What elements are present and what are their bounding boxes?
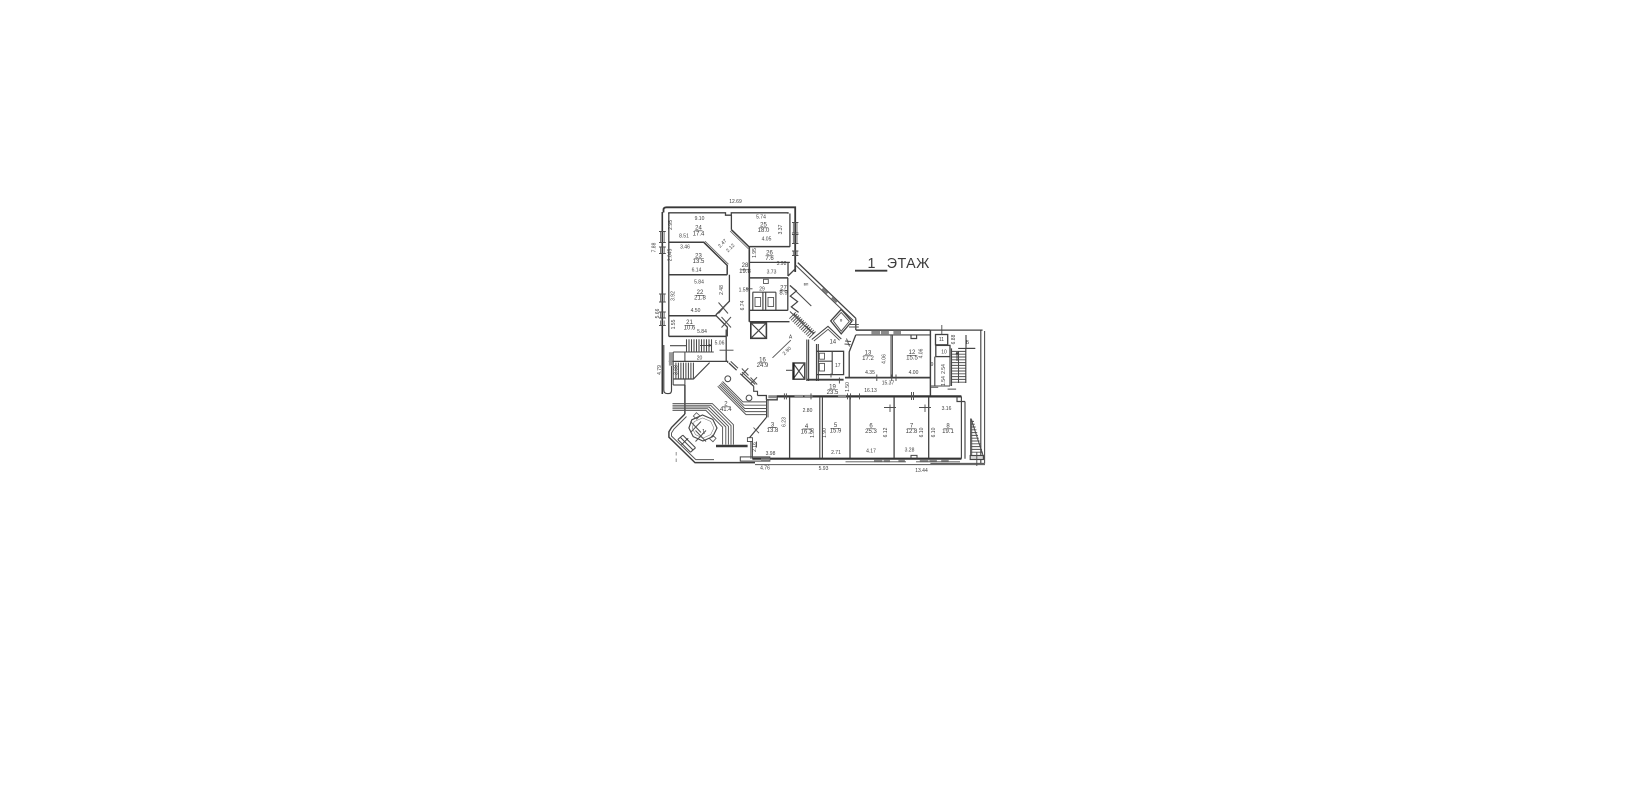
svg-text:16.13: 16.13 xyxy=(864,388,877,394)
svg-text:3.28: 3.28 xyxy=(905,448,915,454)
svg-text:13.5: 13.5 xyxy=(693,259,705,265)
svg-text:41.4: 41.4 xyxy=(720,407,732,413)
svg-text:5.84: 5.84 xyxy=(697,329,707,335)
svg-text:1.90: 1.90 xyxy=(822,428,828,438)
svg-text:1.90: 1.90 xyxy=(810,428,816,438)
svg-text:25.3: 25.3 xyxy=(865,429,877,435)
svg-text:2.80: 2.80 xyxy=(803,408,813,414)
svg-text:3.68: 3.68 xyxy=(674,365,680,375)
svg-text:2.48: 2.48 xyxy=(719,285,725,295)
svg-text:21.8: 21.8 xyxy=(694,296,706,302)
svg-text:4.79: 4.79 xyxy=(657,365,663,375)
svg-text:4.06: 4.06 xyxy=(882,354,888,364)
svg-text:5.74: 5.74 xyxy=(756,215,766,221)
svg-text:4.05: 4.05 xyxy=(762,237,772,243)
svg-text:7.88: 7.88 xyxy=(652,242,658,252)
svg-text:24.9: 24.9 xyxy=(757,363,769,369)
svg-text:15.5: 15.5 xyxy=(906,356,918,362)
svg-text:6.23: 6.23 xyxy=(782,417,788,427)
svg-text:3.16: 3.16 xyxy=(942,406,952,412)
svg-text:29: 29 xyxy=(759,287,765,293)
svg-text:9: 9 xyxy=(931,362,934,368)
svg-text:4.50: 4.50 xyxy=(691,308,701,314)
svg-text:17.4: 17.4 xyxy=(693,231,705,237)
svg-text:5.66: 5.66 xyxy=(655,308,661,318)
svg-text:4.17: 4.17 xyxy=(866,449,876,455)
svg-text:15.9: 15.9 xyxy=(830,429,842,435)
svg-text:2.54: 2.54 xyxy=(941,364,947,374)
svg-text:6.12: 6.12 xyxy=(883,427,889,437)
svg-text:1.50: 1.50 xyxy=(845,382,851,392)
svg-text:3.37: 3.37 xyxy=(778,224,784,234)
svg-text:вп: вп xyxy=(804,282,809,287)
svg-text:2.045: 2.045 xyxy=(668,249,674,262)
svg-text:20: 20 xyxy=(697,356,703,362)
svg-text:9.10: 9.10 xyxy=(695,216,705,222)
svg-text:4.06: 4.06 xyxy=(919,348,925,358)
svg-text:6.88: 6.88 xyxy=(951,334,957,344)
svg-text:12.8: 12.8 xyxy=(906,429,918,435)
svg-text:12.69: 12.69 xyxy=(729,199,742,205)
svg-text:2.16: 2.16 xyxy=(752,442,758,452)
svg-text:1.95: 1.95 xyxy=(752,248,758,258)
svg-text:4.00: 4.00 xyxy=(909,370,919,376)
svg-text:5.84: 5.84 xyxy=(694,280,704,286)
svg-text:17.2: 17.2 xyxy=(862,356,874,362)
svg-text:2.71: 2.71 xyxy=(831,450,841,456)
svg-text:23.5: 23.5 xyxy=(827,390,839,396)
svg-text:3.92: 3.92 xyxy=(671,291,677,301)
svg-text:5.93: 5.93 xyxy=(819,466,829,472)
svg-text:1.54: 1.54 xyxy=(941,376,947,386)
svg-text:ЭТАЖ: ЭТАЖ xyxy=(887,256,930,272)
svg-text:3.46: 3.46 xyxy=(680,245,690,251)
svg-text:8.51: 8.51 xyxy=(679,234,689,240)
svg-text:6.10: 6.10 xyxy=(919,427,925,437)
svg-text:1.55: 1.55 xyxy=(671,319,677,329)
svg-text:7.6: 7.6 xyxy=(765,256,774,262)
svg-text:10: 10 xyxy=(941,350,947,356)
svg-text:10.6: 10.6 xyxy=(684,326,696,332)
svg-text:8.9: 8.9 xyxy=(779,291,788,297)
svg-text:2.95: 2.95 xyxy=(668,220,674,230)
svg-text:14: 14 xyxy=(829,340,836,346)
svg-text:18.0: 18.0 xyxy=(758,228,770,234)
svg-text:5.06: 5.06 xyxy=(715,341,725,347)
svg-text:4.76: 4.76 xyxy=(760,466,770,472)
svg-text:3.98: 3.98 xyxy=(777,261,787,267)
svg-text:13.44: 13.44 xyxy=(915,468,928,474)
svg-text:17: 17 xyxy=(835,363,841,369)
svg-text:19.1: 19.1 xyxy=(942,429,954,435)
svg-text:15.37: 15.37 xyxy=(882,381,895,387)
svg-text:3.73: 3.73 xyxy=(767,270,777,276)
svg-text:6.10: 6.10 xyxy=(931,427,937,437)
svg-text:11: 11 xyxy=(939,337,944,343)
svg-text:13.8: 13.8 xyxy=(767,428,779,434)
svg-text:6.74: 6.74 xyxy=(740,300,746,310)
svg-text:3.98: 3.98 xyxy=(766,451,776,457)
svg-text:6.14: 6.14 xyxy=(692,268,702,274)
svg-text:1: 1 xyxy=(868,256,876,272)
svg-text:4.35: 4.35 xyxy=(865,370,875,376)
svg-text:1.55: 1.55 xyxy=(739,288,749,294)
